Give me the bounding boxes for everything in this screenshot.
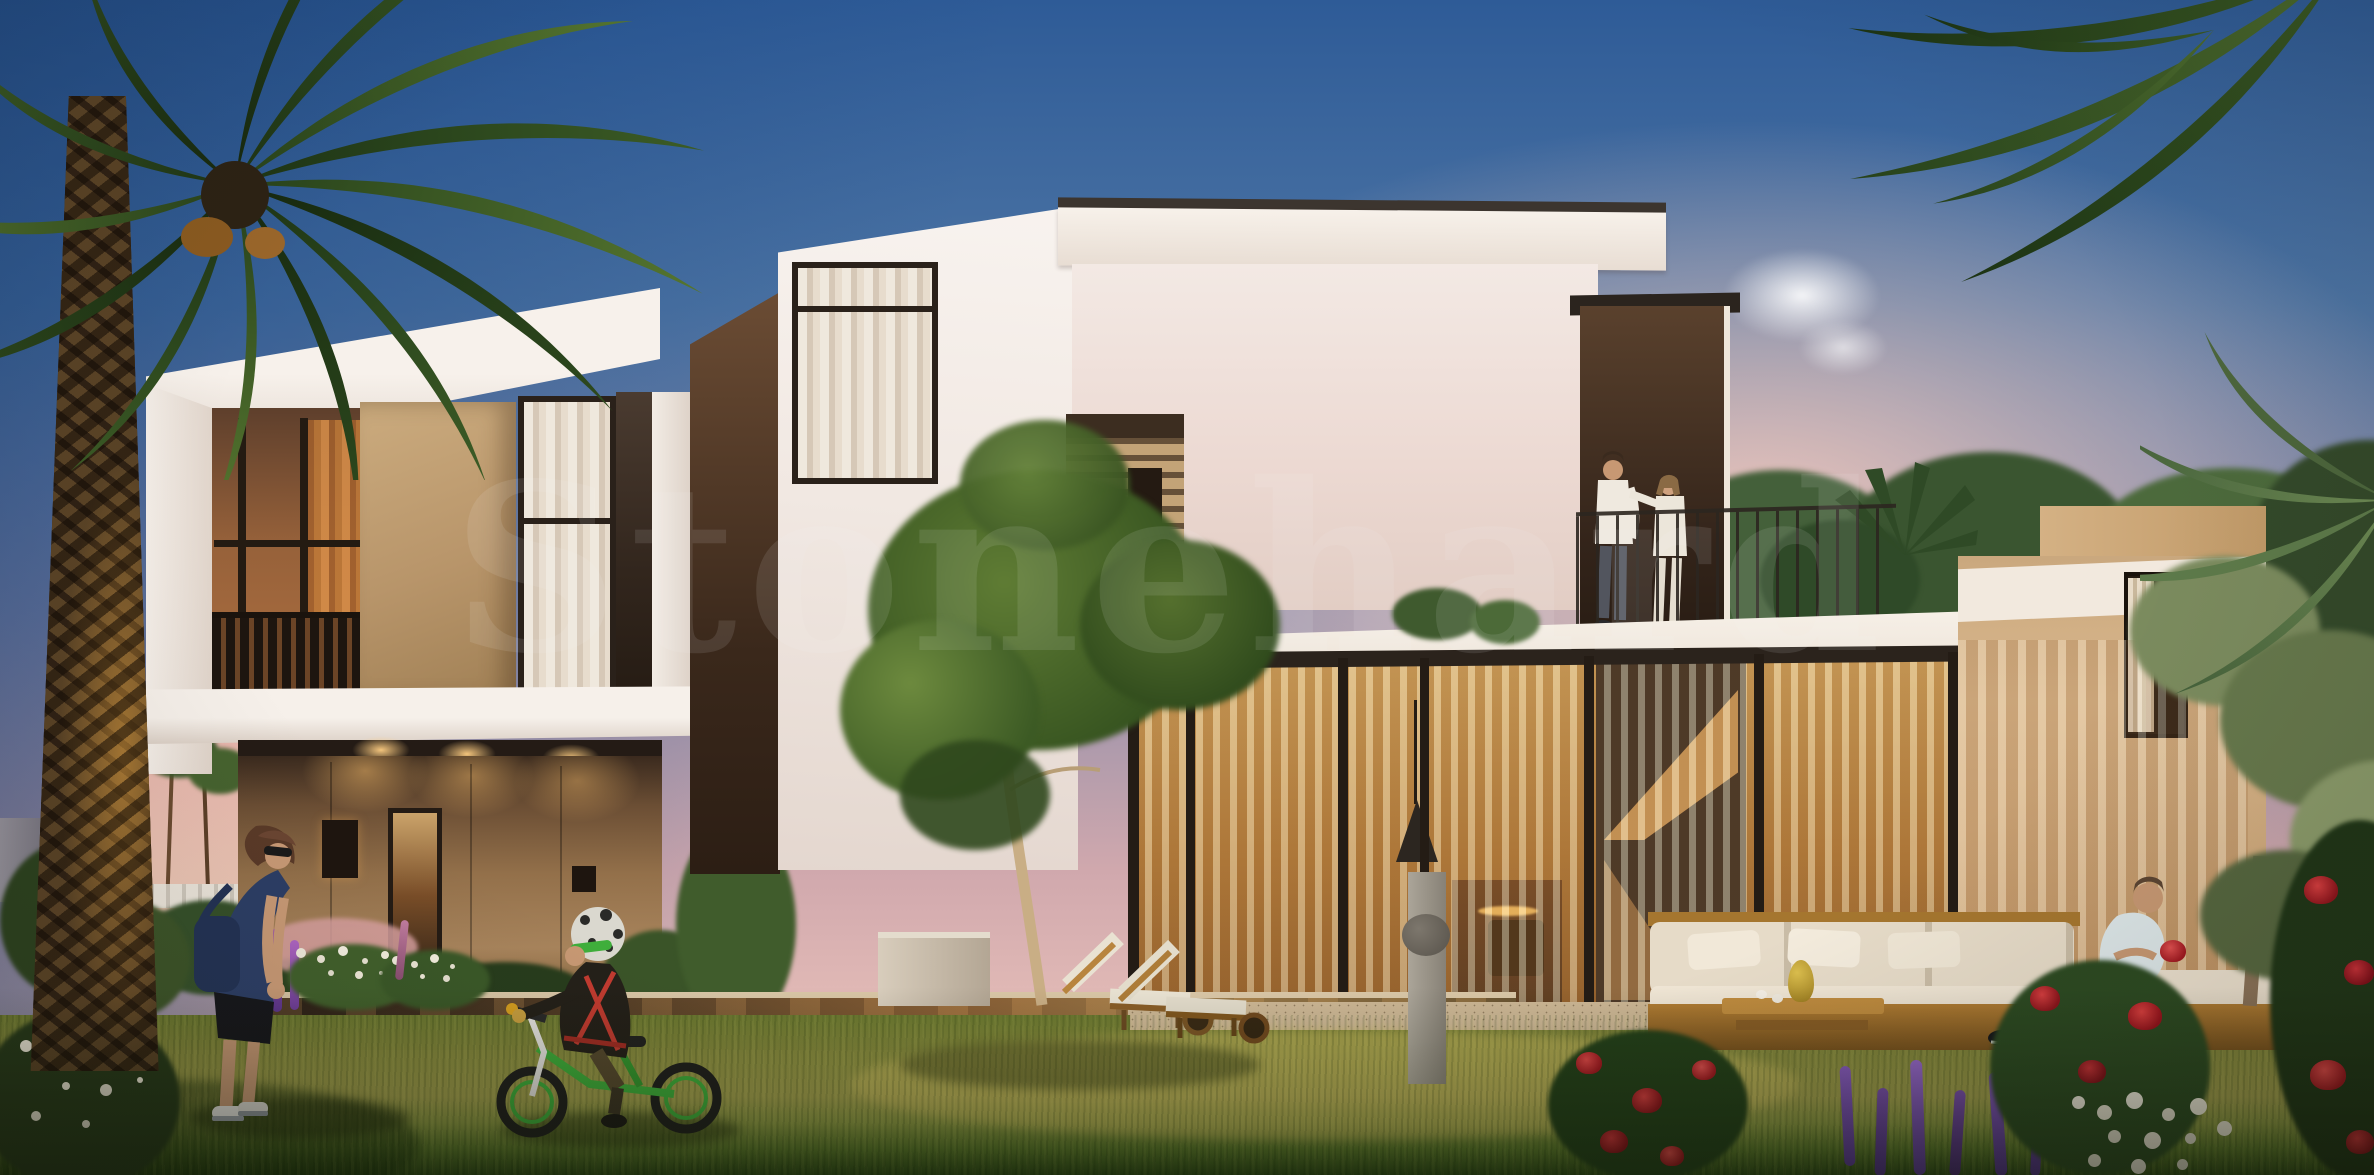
child-on-balance-bike xyxy=(468,898,738,1143)
woman-watching xyxy=(160,798,350,1143)
rose xyxy=(2344,960,2374,985)
throw-pillow xyxy=(1887,931,1960,969)
rose xyxy=(2304,876,2338,904)
rose xyxy=(1576,1052,1602,1074)
tree-foliage xyxy=(900,740,1050,850)
pendant-cord xyxy=(1414,700,1417,804)
throw-pillow xyxy=(1687,930,1761,971)
mullion xyxy=(1584,656,1594,1016)
villa-dusk-render: Stonehard xyxy=(0,0,2374,1175)
alyssum-flowers xyxy=(2072,1096,2085,1109)
rose xyxy=(2078,1060,2106,1083)
brass-vase xyxy=(1788,960,1814,1002)
palm-crown xyxy=(0,0,770,480)
watermark-text: Stonehard xyxy=(452,432,1852,705)
small-window xyxy=(572,866,596,892)
rose xyxy=(1692,1060,1716,1080)
rose xyxy=(2128,1002,2162,1030)
rose xyxy=(2346,1130,2374,1154)
sun-loungers xyxy=(1038,912,1328,1047)
rose xyxy=(2160,940,2186,962)
stone-pillar xyxy=(1408,872,1446,1084)
bird-statue xyxy=(1402,914,1450,956)
right-fascia xyxy=(1058,207,1666,270)
coffee-table-shelf xyxy=(1736,1020,1868,1030)
rose xyxy=(1632,1088,1662,1113)
rose xyxy=(1660,1146,1684,1166)
rose xyxy=(2310,1060,2346,1090)
cup xyxy=(1772,994,1783,1003)
cup xyxy=(1756,990,1767,999)
mullion xyxy=(1338,658,1348,1020)
right-palm-cluster xyxy=(2140,310,2374,790)
window-transom xyxy=(796,306,934,312)
white-flowers xyxy=(20,1040,32,1052)
rose xyxy=(2030,986,2060,1011)
tree-shadow xyxy=(900,1040,1260,1090)
rose xyxy=(1600,1130,1628,1153)
